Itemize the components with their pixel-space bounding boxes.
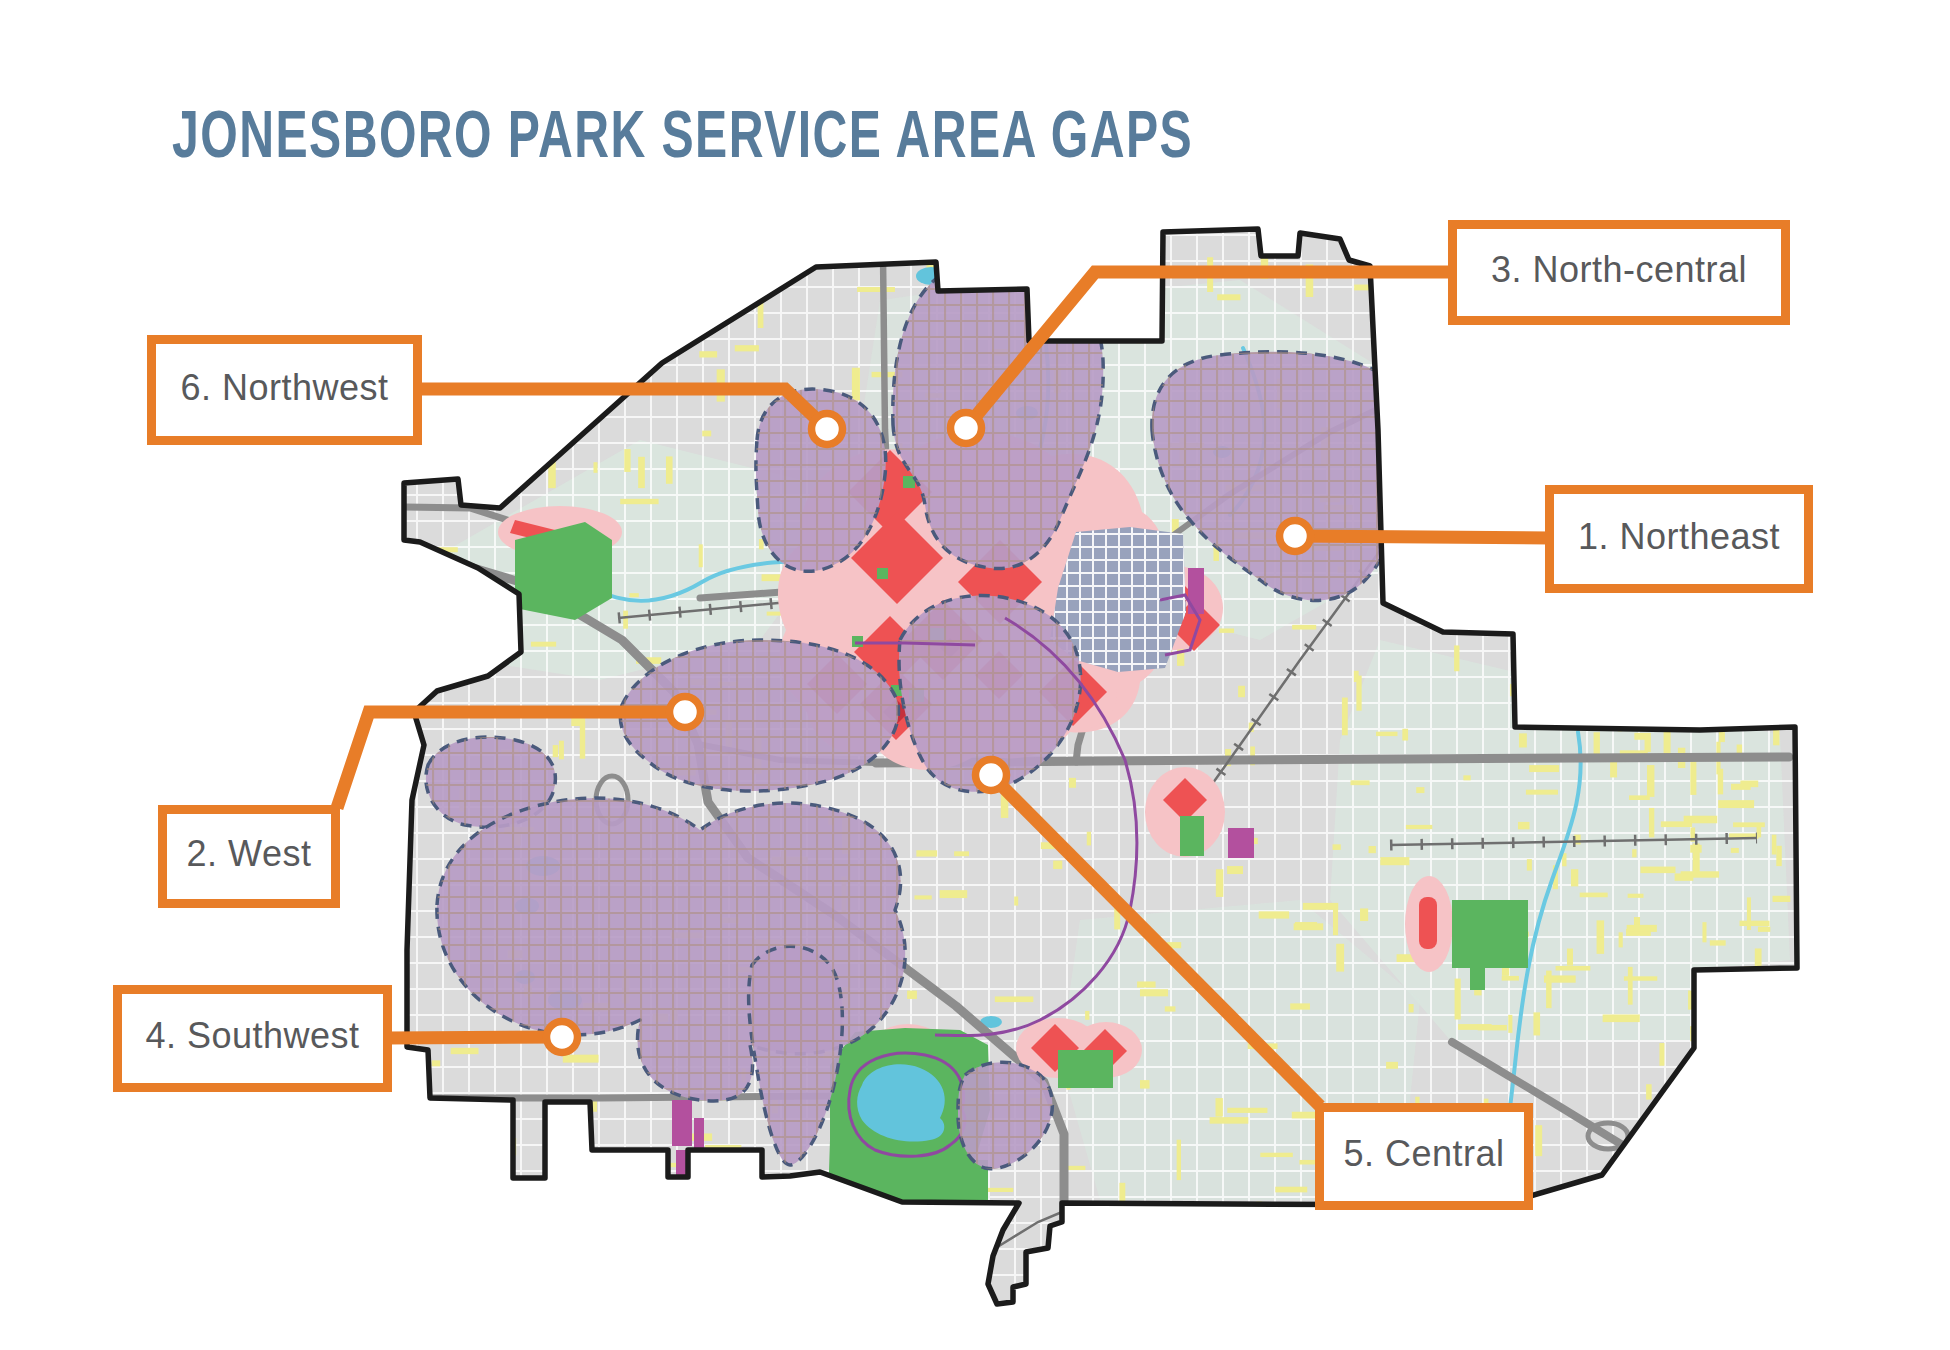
callout-northeast-label: 1. Northeast xyxy=(1578,516,1780,558)
callout-northeast: 1. Northeast xyxy=(1545,485,1813,593)
callout-northwest: 6. Northwest xyxy=(147,335,422,445)
callout-north-central-label: 3. North-central xyxy=(1491,249,1747,291)
marker-west xyxy=(670,697,701,728)
callout-central-label: 5. Central xyxy=(1343,1133,1504,1175)
callout-northwest-label: 6. Northwest xyxy=(180,367,388,409)
callout-west-label: 2. West xyxy=(187,833,312,875)
leader-southwest xyxy=(388,1037,562,1038)
marker-northeast xyxy=(1280,521,1311,552)
jonesboro-city-map xyxy=(0,0,1950,1350)
marker-northwest xyxy=(812,414,843,445)
park-service-gaps-infographic: JONESBORO PARK SERVICE AREA GAPS xyxy=(0,0,1950,1350)
callout-north-central: 3. North-central xyxy=(1448,220,1790,325)
leader-northeast xyxy=(1295,536,1550,538)
callout-southwest-label: 4. Southwest xyxy=(145,1015,359,1057)
marker-southwest xyxy=(547,1022,578,1053)
callout-west: 2. West xyxy=(158,805,340,908)
callout-central: 5. Central xyxy=(1315,1103,1533,1210)
marker-central xyxy=(976,760,1007,791)
marker-north-central xyxy=(951,413,982,444)
callout-southwest: 4. Southwest xyxy=(113,985,392,1092)
